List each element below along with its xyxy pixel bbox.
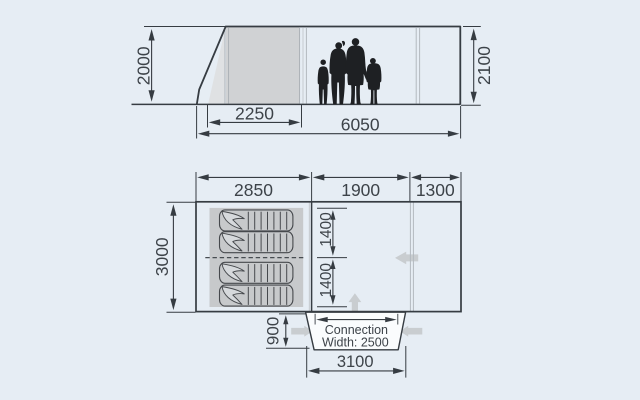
svg-text:6050: 6050 <box>341 114 380 134</box>
svg-text:2850: 2850 <box>234 180 273 200</box>
svg-text:2000: 2000 <box>133 46 153 85</box>
svg-text:2250: 2250 <box>235 103 274 123</box>
svg-text:2100: 2100 <box>474 46 494 85</box>
svg-text:1900: 1900 <box>341 180 380 200</box>
svg-text:1300: 1300 <box>416 180 455 200</box>
svg-text:Width: 2500: Width: 2500 <box>322 335 389 349</box>
svg-text:3100: 3100 <box>337 353 374 371</box>
svg-text:3000: 3000 <box>152 237 172 276</box>
svg-text:1400: 1400 <box>318 263 335 298</box>
svg-text:1400: 1400 <box>318 212 335 247</box>
svg-text:900: 900 <box>264 317 283 345</box>
